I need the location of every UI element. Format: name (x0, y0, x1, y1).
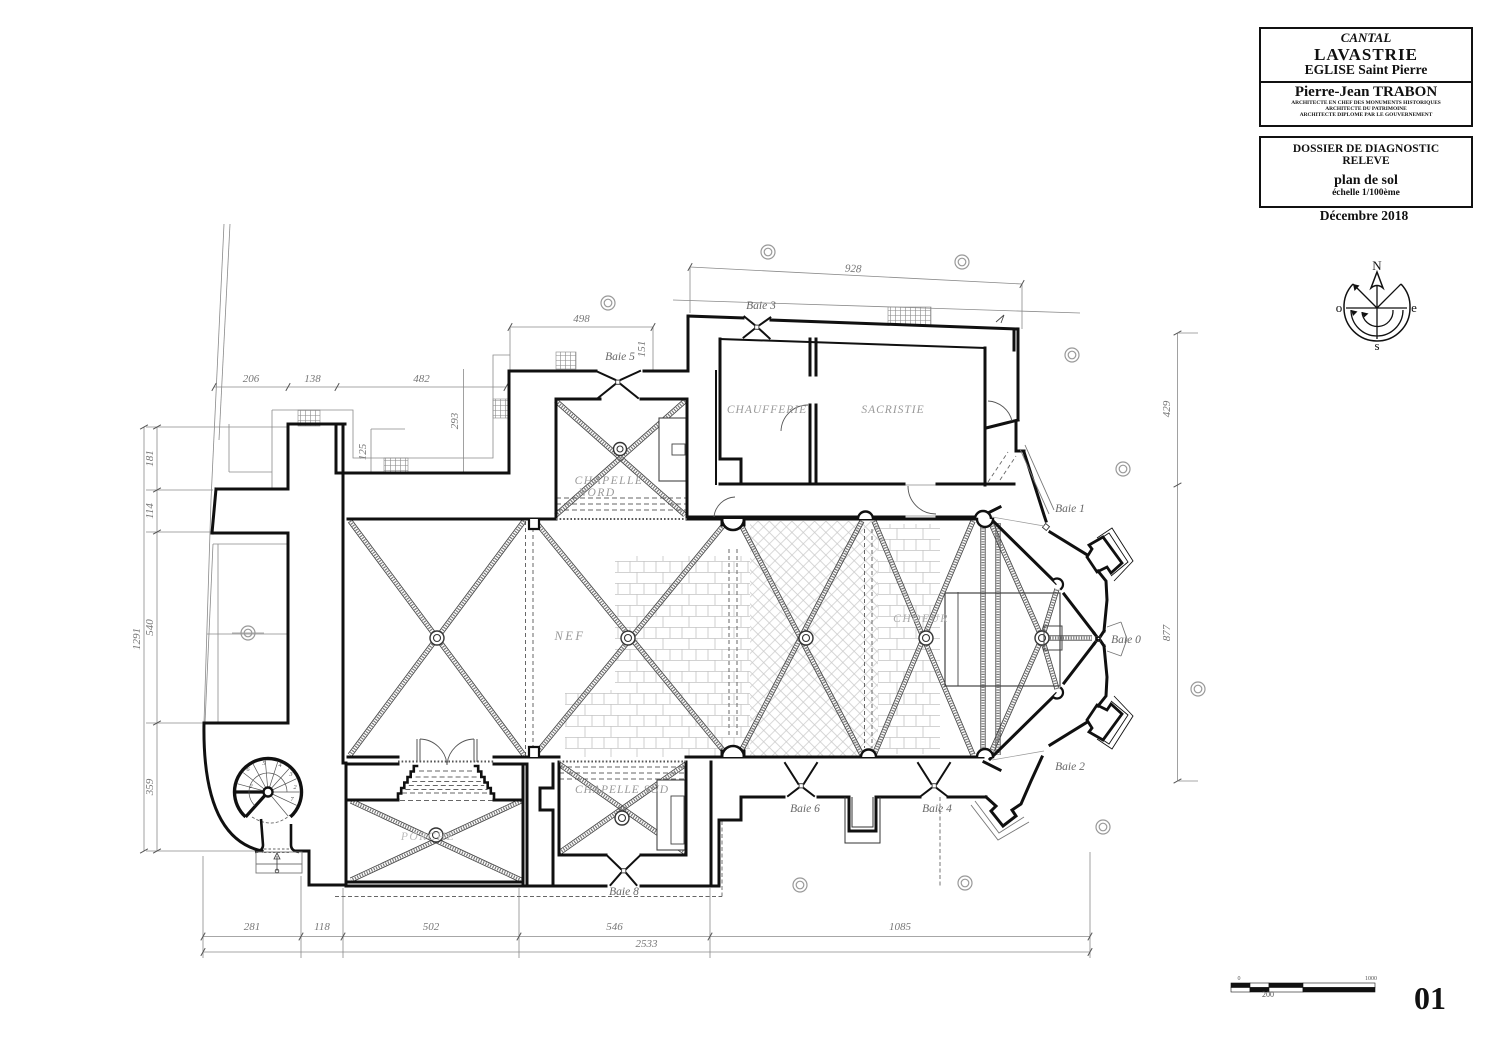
svg-text:Baie 5: Baie 5 (605, 351, 635, 363)
svg-text:e: e (1411, 300, 1417, 315)
svg-text:429: 429 (1161, 400, 1173, 417)
svg-text:N: N (1372, 258, 1382, 273)
svg-text:CHAPELLE: CHAPELLE (575, 475, 644, 487)
svg-text:359: 359 (144, 778, 156, 796)
svg-text:Baie 3: Baie 3 (746, 300, 776, 312)
svg-text:CHAUFFERIE: CHAUFFERIE (727, 404, 807, 416)
svg-text:125: 125 (357, 443, 369, 460)
svg-text:2: 2 (293, 784, 297, 791)
svg-text:1000: 1000 (1365, 976, 1377, 982)
svg-text:CHAPELLE SUD: CHAPELLE SUD (575, 784, 669, 796)
svg-text:138: 138 (304, 373, 321, 385)
svg-text:Baie 6: Baie 6 (790, 803, 820, 815)
svg-text:540: 540 (144, 619, 156, 636)
svg-text:PORCHE: PORCHE (400, 831, 455, 843)
svg-text:206: 206 (243, 373, 260, 385)
svg-text:7: 7 (290, 796, 294, 803)
svg-text:NORD: NORD (577, 487, 615, 499)
svg-text:6: 6 (246, 766, 250, 773)
svg-text:s: s (1374, 338, 1379, 353)
svg-text:293: 293 (449, 412, 461, 429)
svg-text:Baie 0: Baie 0 (1111, 634, 1141, 646)
svg-text:2533: 2533 (636, 938, 659, 950)
svg-text:200: 200 (1262, 990, 1274, 999)
svg-text:928: 928 (845, 263, 863, 276)
svg-text:3: 3 (288, 771, 293, 778)
svg-text:NEF: NEF (553, 629, 585, 643)
svg-text:1291: 1291 (131, 628, 143, 650)
svg-text:CHOEUR: CHOEUR (893, 613, 949, 625)
svg-text:118: 118 (314, 921, 330, 933)
svg-text:Baie 4: Baie 4 (922, 803, 952, 815)
svg-text:0: 0 (1238, 976, 1241, 982)
svg-text:482: 482 (413, 373, 430, 385)
svg-text:Baie 2: Baie 2 (1055, 761, 1085, 773)
svg-text:877: 877 (1161, 624, 1173, 641)
svg-text:o: o (1336, 300, 1343, 315)
svg-text:181: 181 (144, 450, 156, 467)
svg-text:114: 114 (144, 503, 156, 519)
svg-text:502: 502 (423, 921, 440, 933)
svg-text:498: 498 (573, 313, 590, 325)
svg-text:Baie 8: Baie 8 (609, 886, 639, 898)
svg-text:Baie 1: Baie 1 (1055, 503, 1085, 515)
svg-text:281: 281 (244, 921, 261, 933)
svg-text:2: 2 (249, 783, 253, 790)
svg-text:546: 546 (606, 921, 623, 933)
svg-text:1085: 1085 (889, 921, 912, 933)
svg-text:151: 151 (636, 341, 648, 358)
svg-text:SACRISTIE: SACRISTIE (861, 404, 924, 416)
